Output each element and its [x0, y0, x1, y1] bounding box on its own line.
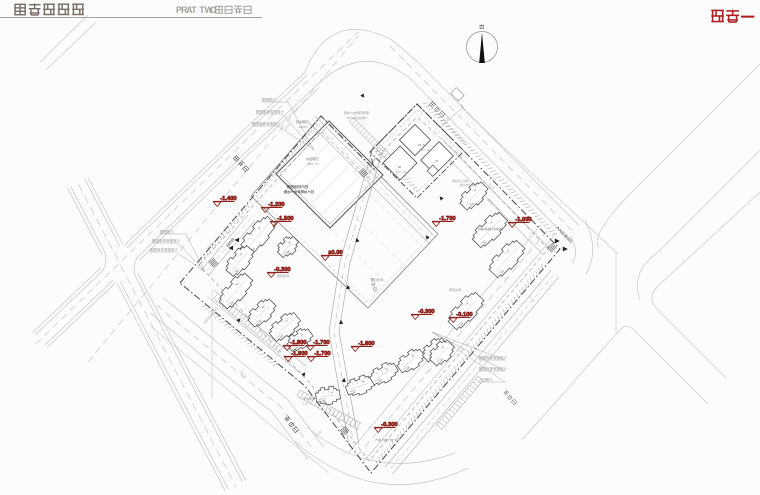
svg-text:-: - — [401, 171, 402, 174]
svg-text:-1.900: -1.900 — [291, 351, 307, 357]
svg-text:-1.000: -1.000 — [515, 217, 531, 223]
svg-text:-0.300: -0.300 — [418, 309, 434, 315]
svg-text:-0.300: -0.300 — [274, 267, 290, 273]
svg-text:8#: 8# — [398, 165, 402, 169]
svg-text:-1.200: -1.200 — [268, 202, 284, 208]
svg-text:7#: 7# — [435, 159, 439, 163]
svg-text:-1.500: -1.500 — [277, 216, 293, 222]
svg-text:-1.800: -1.800 — [358, 341, 374, 347]
svg-text:-0.100: -0.100 — [456, 312, 472, 318]
svg-text:-1.700: -1.700 — [439, 216, 455, 222]
svg-text:F: F — [398, 438, 400, 442]
svg-text:(: ( — [462, 179, 463, 183]
svg-text:-1.800: -1.800 — [290, 340, 306, 346]
svg-text:-: - — [425, 149, 426, 152]
svg-text:T: T — [191, 5, 197, 15]
svg-text:-1.400: -1.400 — [220, 196, 236, 202]
svg-text:): ) — [468, 179, 469, 183]
svg-text:-0.300: -0.300 — [381, 422, 397, 428]
svg-text:±0.00: ±0.00 — [328, 250, 342, 256]
svg-text:-1.700: -1.700 — [313, 340, 329, 346]
svg-text:-1.700: -1.700 — [314, 351, 330, 357]
